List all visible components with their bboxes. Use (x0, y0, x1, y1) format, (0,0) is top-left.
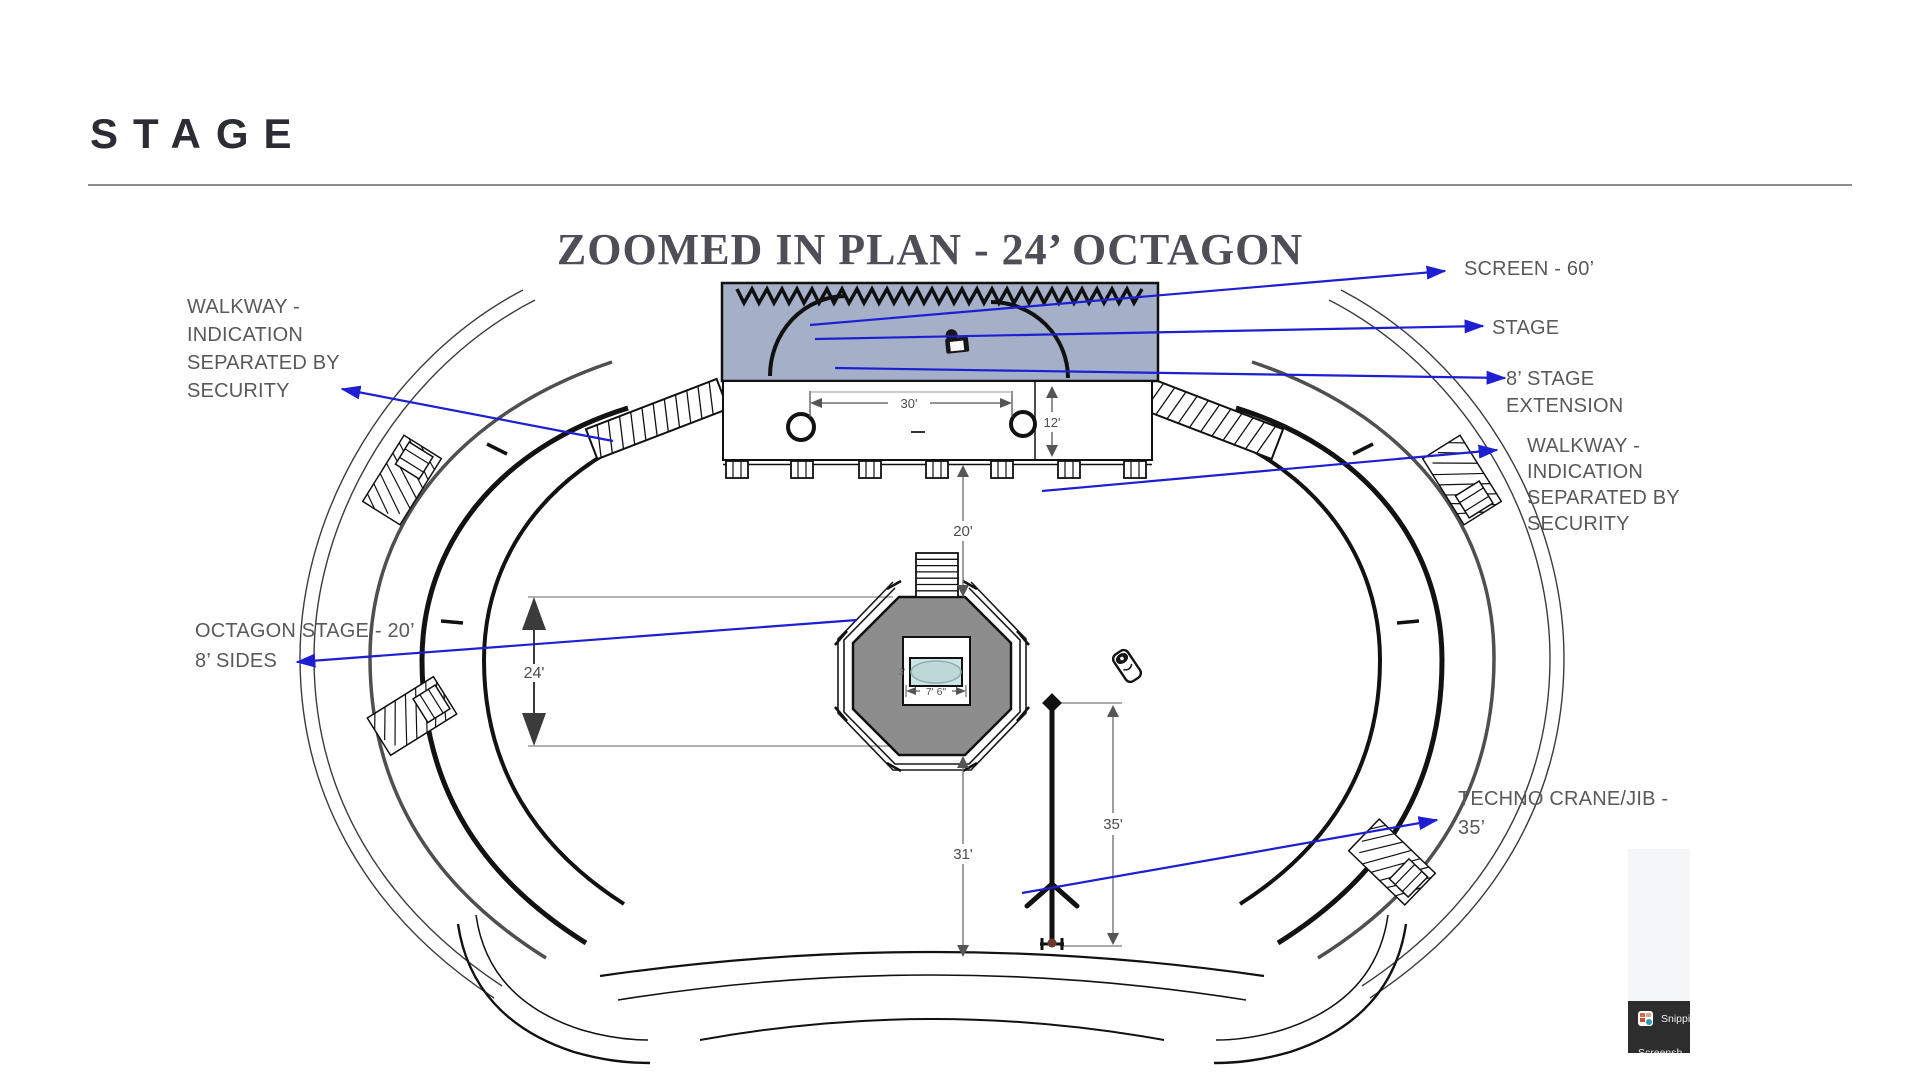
label-line: WALKWAY - (1527, 433, 1680, 459)
label-line: INDICATION (187, 321, 340, 349)
label-line: SEPARATED BY (1527, 485, 1680, 511)
octagon-staircase (916, 553, 958, 597)
label-screen: SCREEN - 60’ (1464, 256, 1594, 283)
piano-lens-shape (911, 661, 961, 683)
arena-bottom-structures (458, 915, 1406, 1063)
camera-cart-icon (1111, 648, 1143, 684)
dimension-35ft: 35' (1058, 703, 1123, 946)
label-walkway-left: WALKWAY - INDICATION SEPARATED BY SECURI… (187, 293, 340, 405)
svg-text:20': 20' (953, 523, 973, 540)
label-techno-crane: TECHNO CRANE/JIB - 35’ (1458, 785, 1668, 843)
label-line: EXTENSION (1506, 393, 1623, 420)
dimension-24ft: 24' (522, 597, 546, 746)
label-stage: STAGE (1492, 315, 1559, 342)
svg-text:30': 30' (901, 396, 918, 411)
label-stage-extension: 8’ STAGE EXTENSION (1506, 366, 1623, 420)
snipping-tool-secondary-label: Screensh (1638, 1047, 1682, 1053)
snipping-tool-app-row[interactable]: Snippi (1638, 1011, 1690, 1026)
snipping-tool-window[interactable]: Snippi Screensh (1628, 849, 1690, 1053)
svg-text:24': 24' (524, 665, 545, 682)
stage-step-units (726, 461, 1146, 478)
stage-extension: 30' 12' (723, 381, 1152, 478)
svg-text:12': 12' (1044, 415, 1061, 430)
svg-text:7' 6": 7' 6" (926, 686, 947, 698)
label-line: 8’ STAGE (1506, 366, 1623, 393)
snipping-tool-icon (1638, 1011, 1653, 1026)
label-line: SEPARATED BY (187, 349, 340, 377)
snipping-tool-title-bar[interactable]: Snippi Screensh (1628, 1001, 1690, 1053)
svg-text:35': 35' (1103, 816, 1123, 833)
label-octagon-stage: OCTAGON STAGE - 20’ 8’ SIDES (195, 616, 415, 676)
label-walkway-right: WALKWAY - INDICATION SEPARATED BY SECURI… (1527, 433, 1680, 537)
label-line: OCTAGON STAGE - 20’ (195, 616, 415, 646)
label-line: 35’ (1458, 814, 1668, 843)
main-stage (722, 283, 1158, 381)
label-line: INDICATION (1527, 459, 1680, 485)
speaker-circle-left (788, 414, 814, 440)
label-line: 8’ SIDES (195, 646, 415, 676)
octagon-stage: 7' 6" 3' (835, 553, 1029, 771)
speaker-circle-right (1011, 412, 1035, 436)
label-line: WALKWAY - (187, 293, 340, 321)
techno-crane (1027, 693, 1077, 950)
svg-text:31': 31' (953, 846, 973, 863)
dimension-3ft: 3' (899, 667, 906, 677)
dimension-31ft: 31' (953, 756, 973, 957)
label-line: SECURITY (1527, 511, 1680, 537)
snipping-tool-preview-panel[interactable] (1628, 849, 1690, 1001)
label-line: TECHNO CRANE/JIB - (1458, 785, 1668, 814)
snipping-tool-app-label: Snippi (1661, 1013, 1690, 1025)
label-line: SECURITY (187, 377, 340, 405)
